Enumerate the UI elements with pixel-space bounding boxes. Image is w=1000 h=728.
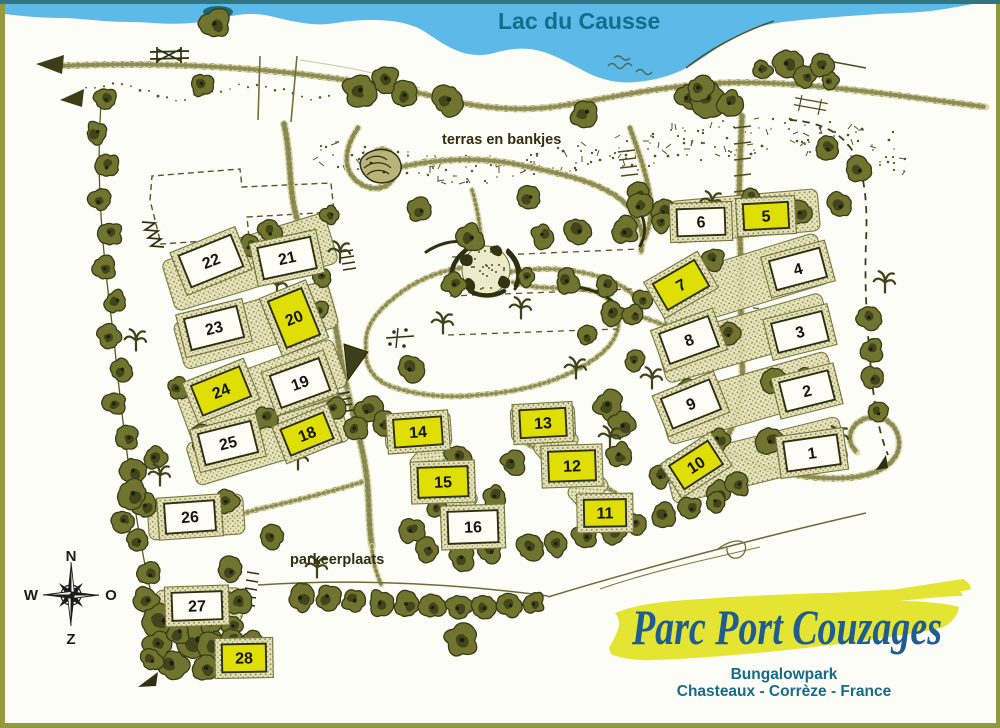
svg-text:terras en bankjes: terras en bankjes <box>442 132 561 148</box>
svg-text:14: 14 <box>409 424 428 442</box>
svg-text:27: 27 <box>188 598 206 616</box>
svg-text:O: O <box>105 587 117 604</box>
svg-text:15: 15 <box>434 474 452 492</box>
svg-text:W: W <box>24 587 39 604</box>
svg-text:5: 5 <box>761 208 771 225</box>
svg-text:Parc Port Couzages: Parc Port Couzages <box>631 599 942 655</box>
svg-text:12: 12 <box>563 458 581 476</box>
svg-text:16: 16 <box>464 519 482 537</box>
svg-text:21: 21 <box>277 249 298 269</box>
svg-text:Bungalowpark: Bungalowpark <box>731 666 838 683</box>
svg-text:N: N <box>66 548 77 565</box>
svg-text:6: 6 <box>696 214 706 231</box>
svg-text:Lac du Causse: Lac du Causse <box>498 8 660 34</box>
svg-text:11: 11 <box>596 505 613 522</box>
svg-text:parkeerplaats: parkeerplaats <box>290 552 384 568</box>
svg-text:Chasteaux - Corrèze - France: Chasteaux - Corrèze - France <box>677 683 892 700</box>
svg-text:13: 13 <box>534 415 553 433</box>
svg-text:26: 26 <box>181 509 200 527</box>
svg-text:Z: Z <box>66 631 75 648</box>
svg-text:28: 28 <box>235 650 253 667</box>
